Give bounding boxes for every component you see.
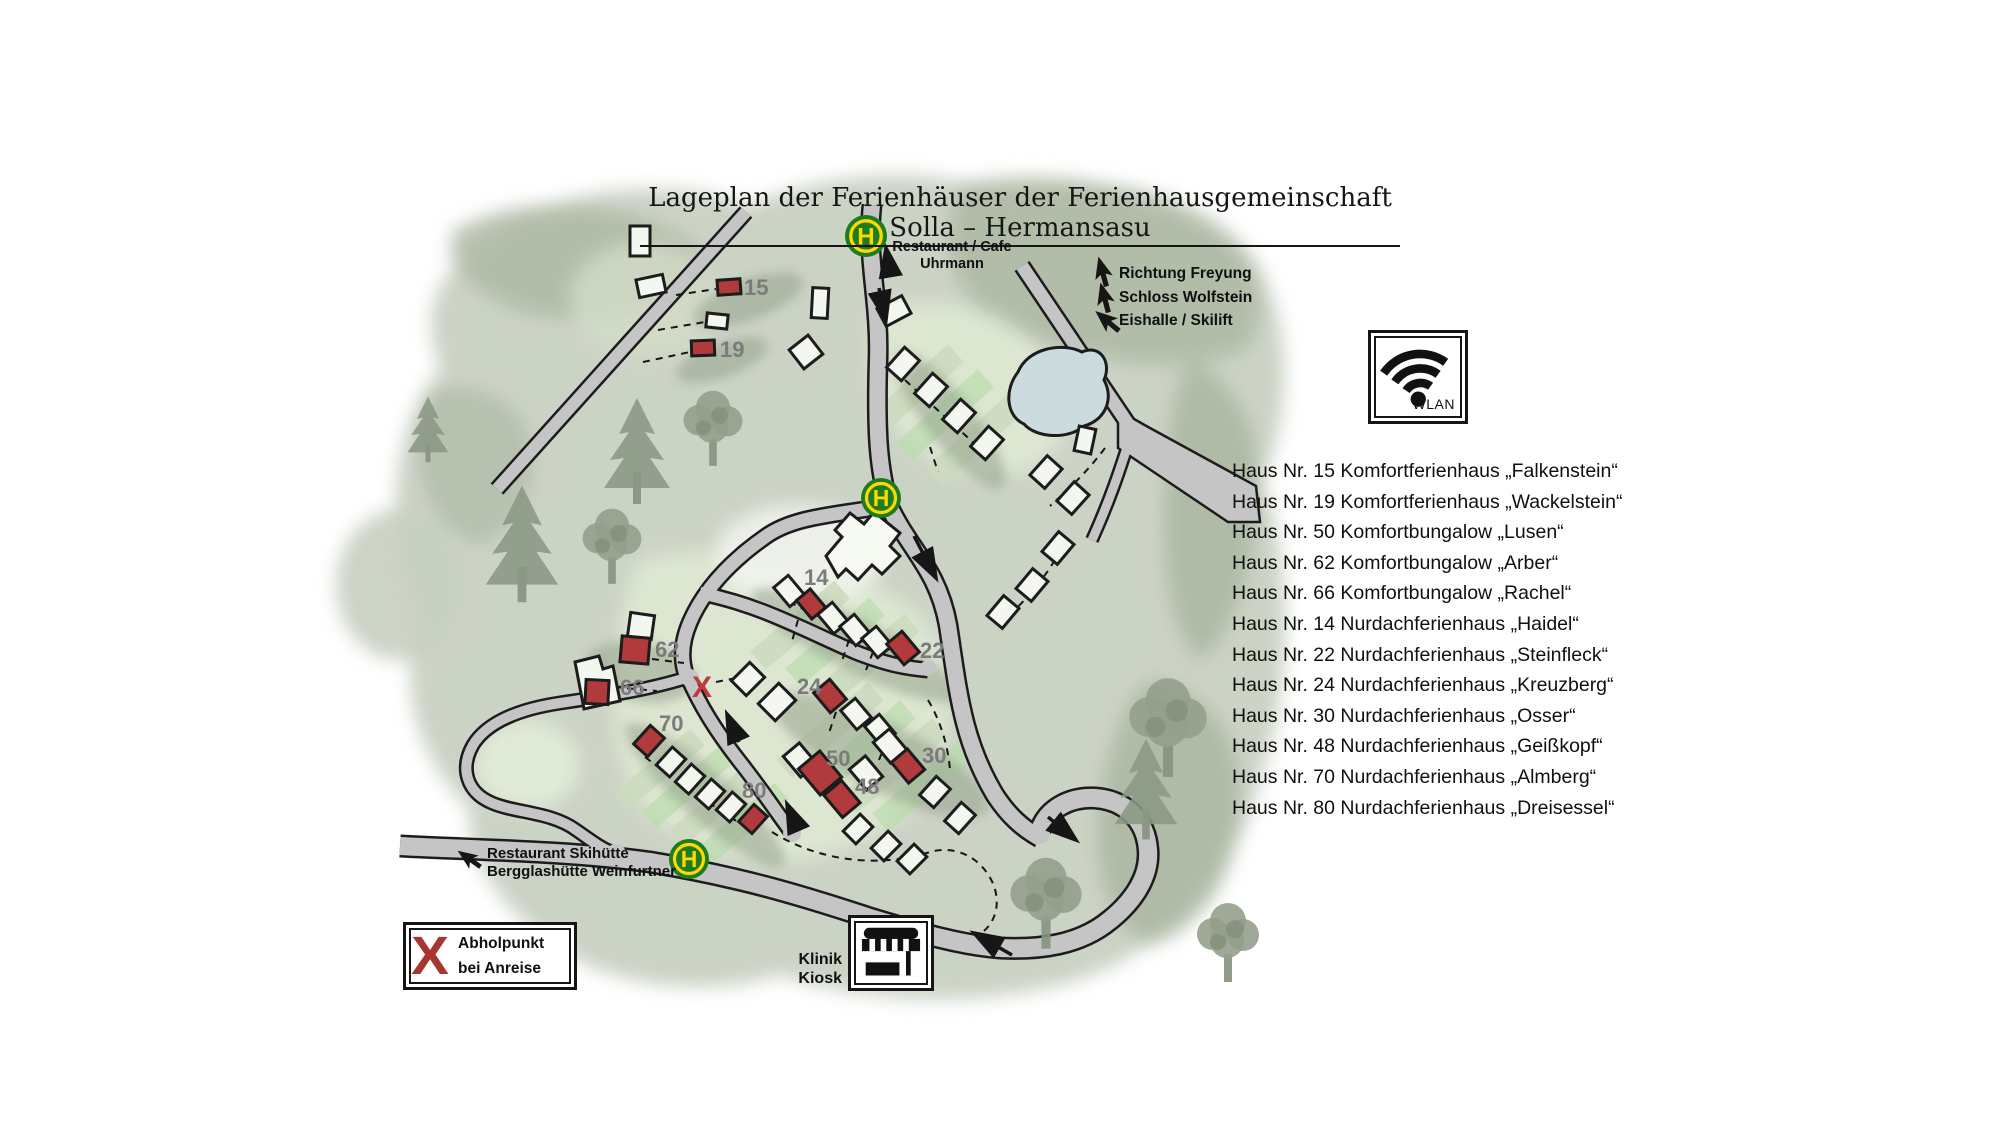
pond: [1009, 347, 1108, 435]
deciduous-tree-icon: [1197, 903, 1259, 982]
house-number-14: 14: [804, 565, 829, 590]
site-map: H: [0, 0, 2000, 1125]
house-number-30: 30: [922, 743, 946, 768]
legend-item: Haus Nr. 80 Nurdachferienhaus „Dreisesse…: [1232, 793, 1623, 824]
pickup-x-icon: X: [411, 931, 449, 981]
wlan-label: WLAN: [1413, 396, 1455, 412]
house-number-19: 19: [720, 337, 744, 362]
wlan-sign: WLAN: [1368, 330, 1468, 424]
house-number-66: 66: [620, 675, 644, 700]
house-number-50: 50: [826, 746, 850, 771]
house-15-marker: [717, 279, 741, 296]
house-legend: Haus Nr. 15 Komfortferienhaus „Falkenste…: [1232, 456, 1623, 823]
label-restaurant-cafe-line1: Restaurant / Cafe: [890, 239, 1014, 256]
bus-stop-middle: [861, 478, 901, 518]
legend-item: Haus Nr. 19 Komfortferienhaus „Wackelste…: [1232, 487, 1623, 518]
legend-item: Haus Nr. 22 Nurdachferienhaus „Steinflec…: [1232, 640, 1623, 671]
wlan-sign-inner: WLAN: [1374, 336, 1462, 418]
label-schloss-wolfstein: Schloss Wolfstein: [1119, 289, 1252, 306]
kiosk-sign: [848, 915, 934, 991]
site-plan-page: H: [0, 0, 2000, 1125]
house-number-24: 24: [797, 674, 822, 699]
kiosk-storefront-icon: [856, 923, 926, 983]
legend-item: Haus Nr. 70 Nurdachferienhaus „Almberg“: [1232, 762, 1623, 793]
label-restaurant-cafe-line2: Uhrmann: [890, 256, 1014, 273]
house-66-marker: [585, 679, 609, 704]
legend-item: Haus Nr. 30 Nurdachferienhaus „Osser“: [1232, 701, 1623, 732]
label-skihuette-line2: Bergglashütte Weinfurtner: [487, 863, 676, 881]
legend-item: Haus Nr. 66 Komfortbungalow „Rachel“: [1232, 578, 1623, 609]
house-number-62: 62: [655, 637, 679, 662]
pickup-line2: bei Anreise: [458, 956, 544, 981]
label-restaurant-cafe: Restaurant / Cafe Uhrmann: [890, 239, 1014, 273]
label-skihuette: Restaurant Skihütte Bergglashütte Weinfu…: [487, 845, 676, 881]
house-62-marker: [620, 636, 650, 664]
label-richtung-freyung: Richtung Freyung: [1119, 265, 1252, 282]
legend-item: Haus Nr. 48 Nurdachferienhaus „Geißkopf“: [1232, 731, 1623, 762]
house-number-48: 48: [855, 774, 879, 799]
label-skihuette-line1: Restaurant Skihütte: [487, 845, 676, 863]
legend-item: Haus Nr. 62 Komfortbungalow „Arber“: [1232, 548, 1623, 579]
house-number-70: 70: [659, 711, 683, 736]
kiosk-sign-inner: [854, 921, 928, 985]
legend-item: Haus Nr. 14 Nurdachferienhaus „Haidel“: [1232, 609, 1623, 640]
pickup-point-sign: X Abholpunkt bei Anreise: [403, 922, 577, 990]
house-19-marker: [691, 340, 715, 356]
house-number-80: 80: [742, 778, 766, 803]
house-number-15: 15: [744, 275, 768, 300]
label-klinik-kiosk: Klinik Kiosk: [756, 950, 842, 988]
label-kiosk: Kiosk: [756, 969, 842, 988]
legend-item: Haus Nr. 50 Komfortbungalow „Lusen“: [1232, 517, 1623, 548]
house-number-22: 22: [920, 638, 944, 663]
label-eishalle-skilift: Eishalle / Skilift: [1119, 312, 1233, 329]
legend-item: Haus Nr. 15 Komfortferienhaus „Falkenste…: [1232, 456, 1623, 487]
pickup-x-map-marker: X: [692, 671, 712, 704]
legend-item: Haus Nr. 24 Nurdachferienhaus „Kreuzberg…: [1232, 670, 1623, 701]
label-klinik: Klinik: [756, 950, 842, 969]
pickup-line1: Abholpunkt: [458, 931, 544, 956]
page-title-text: Lageplan der Ferienhäuser der Ferienhaus…: [640, 183, 1400, 247]
page-title: Lageplan der Ferienhäuser der Ferienhaus…: [640, 183, 1400, 247]
